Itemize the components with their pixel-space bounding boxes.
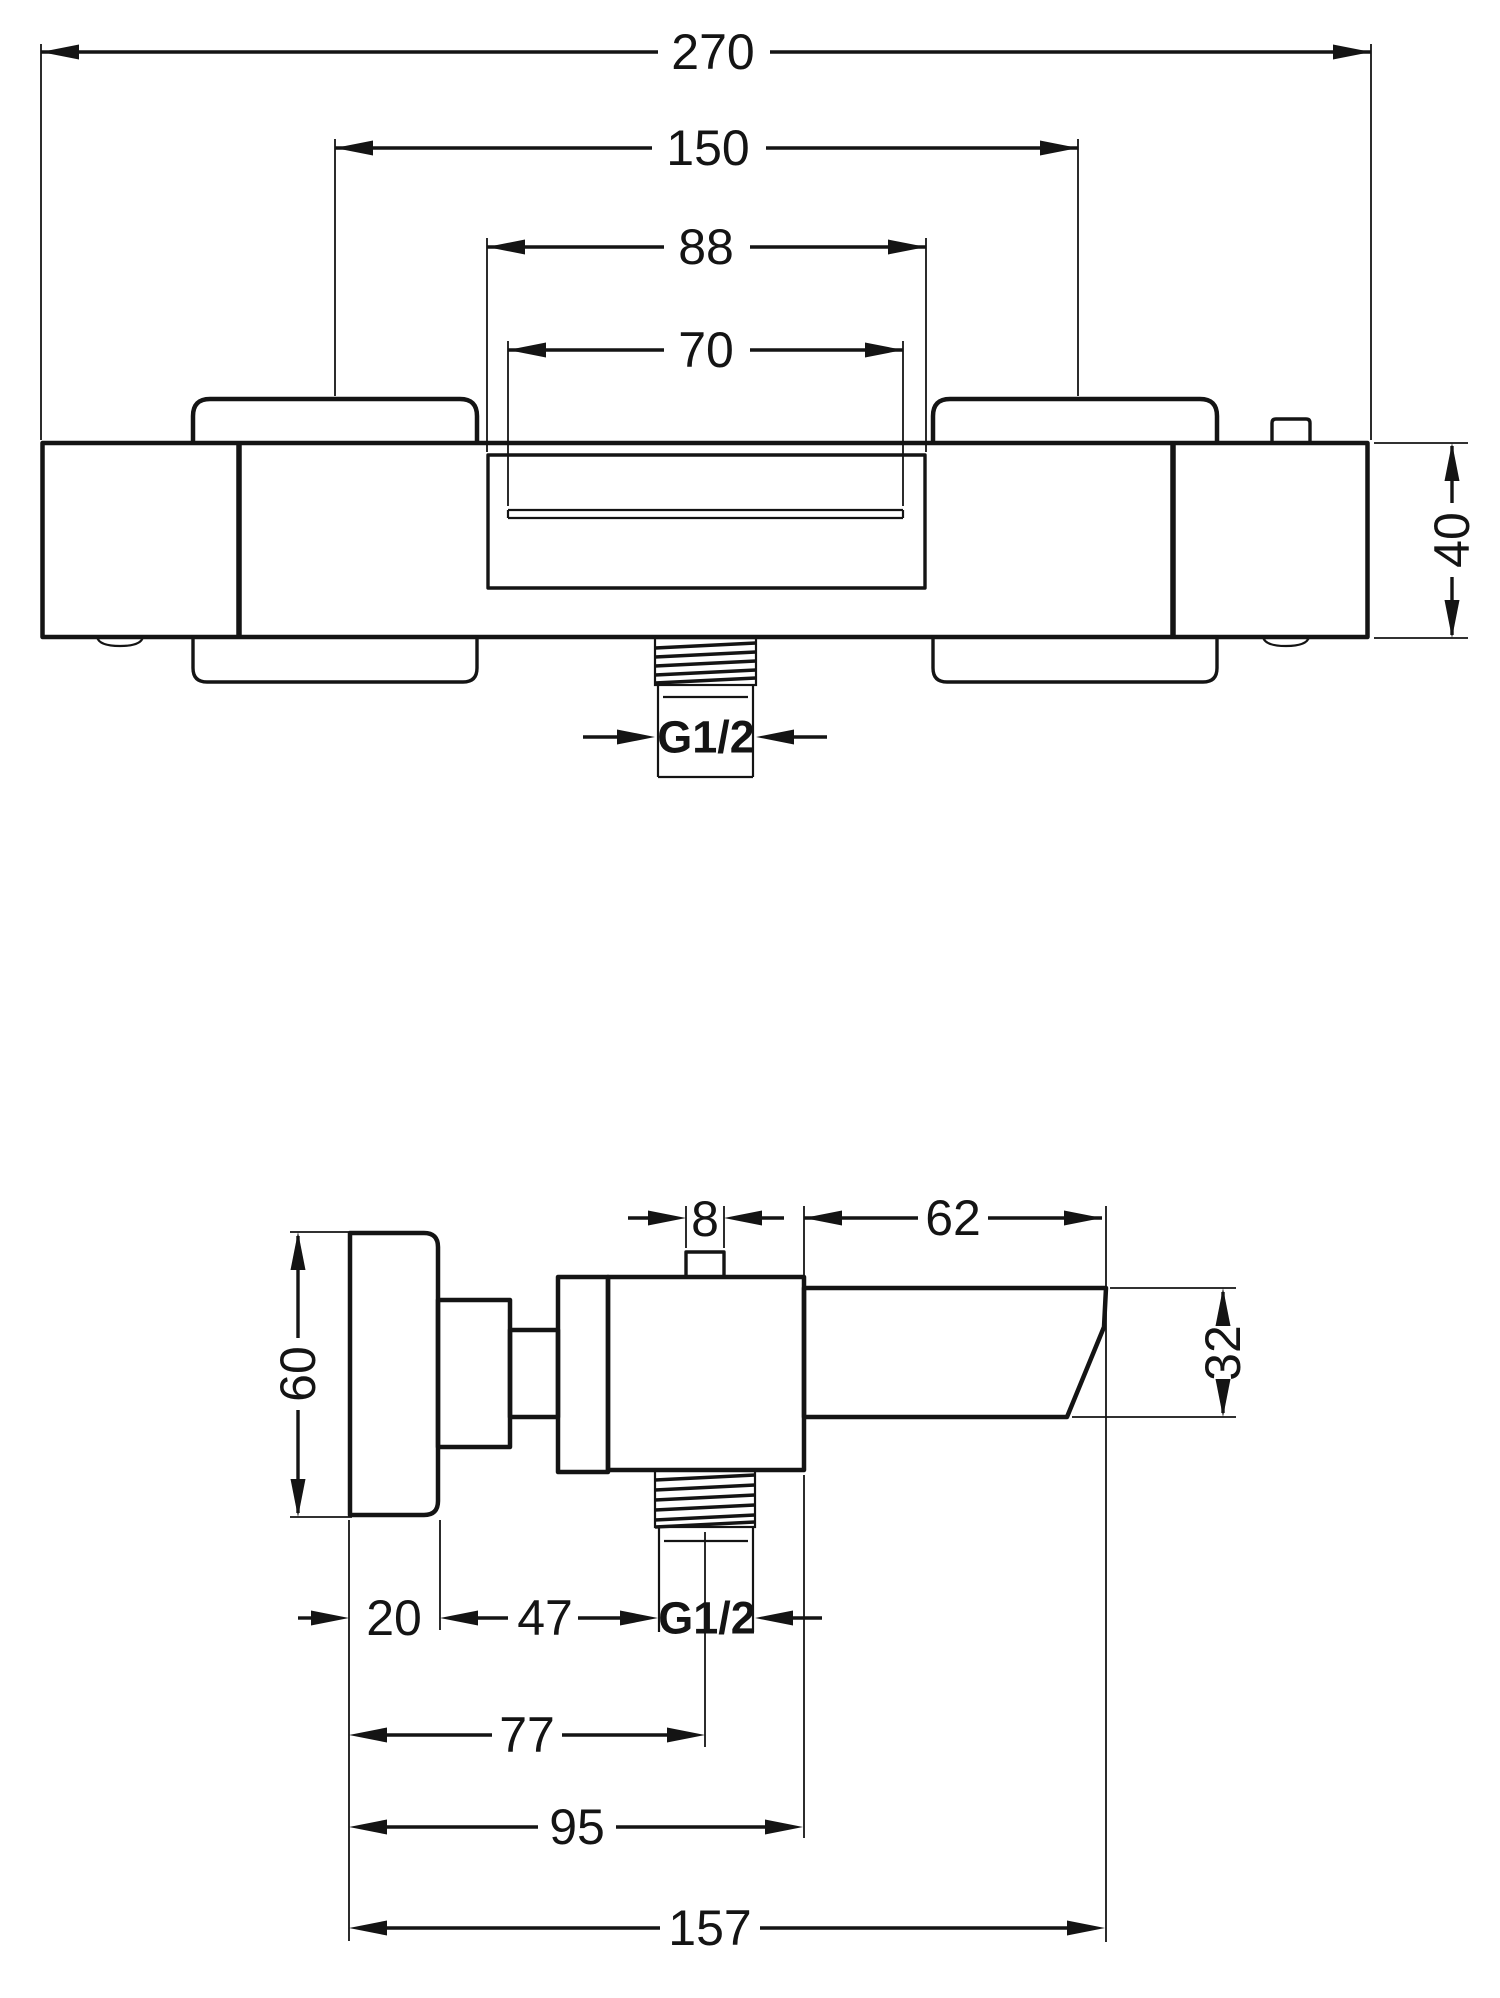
dim-front-thread-label: G1/2 <box>657 712 755 763</box>
dim-diverter-width-label: 8 <box>691 1191 719 1247</box>
side-knob <box>350 1233 438 1515</box>
dim-spout-opening-label: 70 <box>678 322 734 378</box>
drawing-page: 270 150 88 70 <box>0 0 1500 1993</box>
front-spout-lip <box>508 510 903 518</box>
side-knob-cap <box>438 1300 510 1447</box>
dim-spout-recess-outer-label: 88 <box>678 219 734 275</box>
dim-handle-height: 60 <box>270 1232 352 1517</box>
dim-handle-depth-label: 20 <box>366 1590 422 1646</box>
side-view <box>350 1233 1106 1632</box>
front-left-handle <box>193 399 477 443</box>
dim-overall-width-label: 270 <box>671 24 754 80</box>
front-right-handle <box>933 399 1217 443</box>
side-stem <box>510 1330 558 1417</box>
technical-drawing: 270 150 88 70 <box>0 0 1500 1993</box>
dim-spout-length-label: 62 <box>925 1190 981 1246</box>
dim-spout-length: 62 <box>804 1190 1106 1942</box>
dim-handle-to-thread-label: 47 <box>517 1590 573 1646</box>
dim-handle-spacing-label: 150 <box>666 120 749 176</box>
side-body <box>608 1277 804 1470</box>
front-left-pad <box>193 638 477 682</box>
dim-body-height: 40 <box>1374 443 1480 638</box>
dim-depth-to-body-face: 95 <box>349 1475 804 1855</box>
side-diverter-stub <box>686 1252 724 1277</box>
dim-total-depth: 157 <box>349 1900 1105 1956</box>
front-right-pad <box>933 638 1217 682</box>
front-spout-recess <box>488 455 925 588</box>
side-flange <box>558 1277 608 1472</box>
dim-side-thread-label: G1/2 <box>658 1593 756 1644</box>
dim-depth-to-outlet-center: 77 <box>349 1532 705 1763</box>
dim-total-depth-label: 157 <box>668 1900 751 1956</box>
dim-depth-to-outlet-center-label: 77 <box>499 1707 555 1763</box>
dim-spout-height: 32 <box>1072 1288 1251 1417</box>
dim-spout-opening: 70 <box>508 322 903 506</box>
front-dimensions: 270 150 88 70 <box>41 24 1480 763</box>
dim-diverter-width: 8 <box>628 1191 784 1248</box>
side-spout <box>804 1288 1106 1417</box>
dim-body-height-label: 40 <box>1424 512 1480 568</box>
dim-spout-height-label: 32 <box>1195 1325 1251 1381</box>
dim-depth-to-body-face-label: 95 <box>549 1799 605 1855</box>
dim-front-thread: G1/2 <box>583 712 827 763</box>
dim-handle-height-label: 60 <box>270 1346 326 1402</box>
front-button <box>1272 419 1310 443</box>
